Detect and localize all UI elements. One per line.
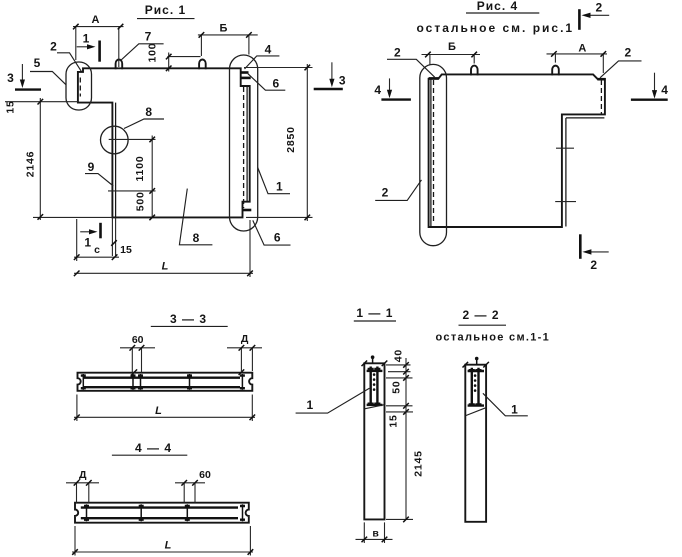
- svg-text:15: 15: [120, 244, 132, 256]
- svg-text:L: L: [165, 540, 172, 552]
- svg-text:6: 6: [273, 77, 280, 91]
- svg-text:1100: 1100: [134, 156, 146, 182]
- svg-text:Д: Д: [79, 469, 87, 481]
- svg-text:А: А: [578, 43, 586, 55]
- svg-text:60: 60: [199, 469, 211, 481]
- svg-text:15: 15: [388, 414, 400, 427]
- svg-text:1 — 1: 1 — 1: [356, 306, 393, 320]
- svg-text:L: L: [155, 405, 162, 417]
- svg-text:8: 8: [193, 231, 200, 245]
- svg-text:2 — 2: 2 — 2: [462, 308, 499, 322]
- svg-text:3 — 3: 3 — 3: [170, 312, 207, 326]
- svg-text:500: 500: [134, 191, 146, 211]
- svg-text:2850: 2850: [285, 126, 297, 153]
- svg-text:7: 7: [145, 30, 152, 44]
- svg-text:2: 2: [50, 40, 57, 54]
- svg-text:50: 50: [391, 380, 403, 393]
- svg-text:60: 60: [132, 334, 144, 346]
- svg-text:4: 4: [661, 83, 668, 97]
- svg-text:Б: Б: [219, 23, 227, 35]
- svg-text:в: в: [372, 528, 379, 540]
- svg-text:2: 2: [394, 46, 401, 60]
- svg-text:6: 6: [274, 231, 281, 245]
- svg-text:2: 2: [596, 1, 603, 15]
- svg-text:4 — 4: 4 — 4: [135, 441, 172, 455]
- svg-text:100: 100: [147, 43, 159, 63]
- svg-text:Рис. 4: Рис. 4: [477, 0, 518, 13]
- svg-text:2: 2: [382, 186, 389, 200]
- svg-text:1: 1: [84, 236, 91, 250]
- svg-text:Б: Б: [448, 41, 456, 53]
- svg-text:8: 8: [145, 105, 152, 119]
- svg-text:А: А: [92, 14, 100, 26]
- svg-text:5: 5: [34, 56, 41, 70]
- svg-text:1: 1: [83, 32, 90, 46]
- svg-text:с: с: [94, 244, 100, 256]
- svg-text:2: 2: [590, 258, 597, 272]
- svg-text:1: 1: [307, 398, 314, 412]
- svg-text:4: 4: [374, 83, 381, 97]
- svg-text:40: 40: [393, 349, 405, 362]
- svg-text:2146: 2146: [25, 151, 37, 178]
- svg-text:3: 3: [339, 74, 346, 88]
- svg-text:1: 1: [511, 403, 518, 417]
- svg-text:9: 9: [88, 160, 95, 174]
- svg-text:2145: 2145: [412, 450, 424, 477]
- svg-text:3: 3: [7, 71, 14, 85]
- svg-text:L: L: [162, 261, 169, 273]
- svg-text:остальное см. рис.1: остальное см. рис.1: [417, 21, 575, 35]
- svg-text:2: 2: [625, 46, 632, 60]
- svg-text:Д: Д: [241, 333, 249, 345]
- svg-text:Рис. 1: Рис. 1: [145, 3, 186, 17]
- svg-text:15: 15: [5, 100, 17, 113]
- svg-text:остальное см.1-1: остальное см.1-1: [436, 332, 551, 344]
- svg-text:4: 4: [265, 43, 272, 57]
- svg-text:1: 1: [276, 180, 283, 194]
